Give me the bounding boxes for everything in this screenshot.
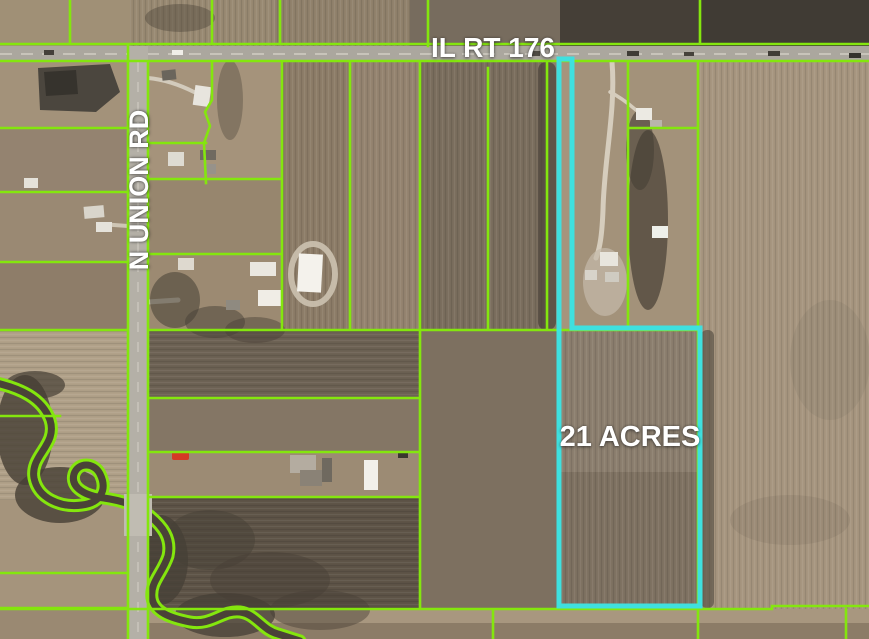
road-label: N UNION RD: [124, 110, 154, 271]
farm-house: [600, 252, 618, 266]
commercial-building: [44, 70, 78, 96]
parcel-acreage-label: 21 ACRES: [560, 421, 701, 453]
aerial-parcel-map: IL RT 176 N UNION RD 21 ACRES: [0, 0, 869, 639]
white-trailer: [364, 460, 378, 490]
highway-label: IL RT 176: [431, 32, 555, 63]
farm-house: [178, 258, 194, 270]
house: [168, 152, 184, 166]
white-barn: [297, 253, 323, 292]
